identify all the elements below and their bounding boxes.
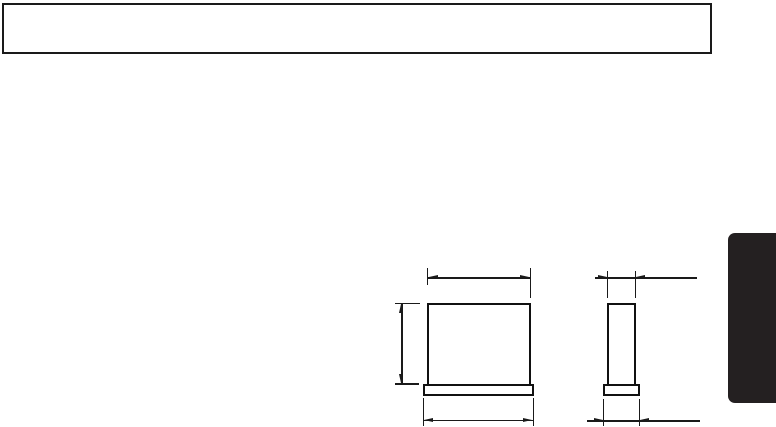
dimension-line — [401, 304, 402, 383]
side-view-base-outline — [603, 384, 640, 396]
arrowhead-right-icon — [594, 418, 603, 422]
extension-line — [530, 268, 531, 298]
side-view-body-outline — [607, 303, 636, 387]
front-view-body-outline — [427, 303, 531, 387]
extension-line — [533, 398, 534, 426]
arrowhead-left-icon — [424, 418, 433, 422]
arrowhead-right-icon — [520, 275, 529, 279]
dimension-line — [424, 420, 533, 421]
dimension-line — [428, 277, 530, 278]
manual-page — [0, 0, 776, 427]
arrowhead-right-icon — [523, 418, 532, 422]
arrowhead-down-icon — [399, 374, 403, 383]
page-edge-tab — [728, 233, 776, 403]
arrowhead-right-icon — [598, 275, 607, 279]
arrowhead-left-icon — [640, 418, 649, 422]
arrowhead-up-icon — [399, 304, 403, 313]
arrowhead-left-icon — [636, 275, 645, 279]
extension-line — [603, 399, 604, 426]
extension-line — [395, 383, 419, 384]
extension-line — [423, 398, 424, 426]
extension-line — [607, 271, 608, 298]
header-box — [2, 3, 712, 54]
arrowhead-left-icon — [429, 275, 438, 279]
dimension-line — [595, 277, 697, 278]
front-view-base-outline — [423, 384, 534, 396]
